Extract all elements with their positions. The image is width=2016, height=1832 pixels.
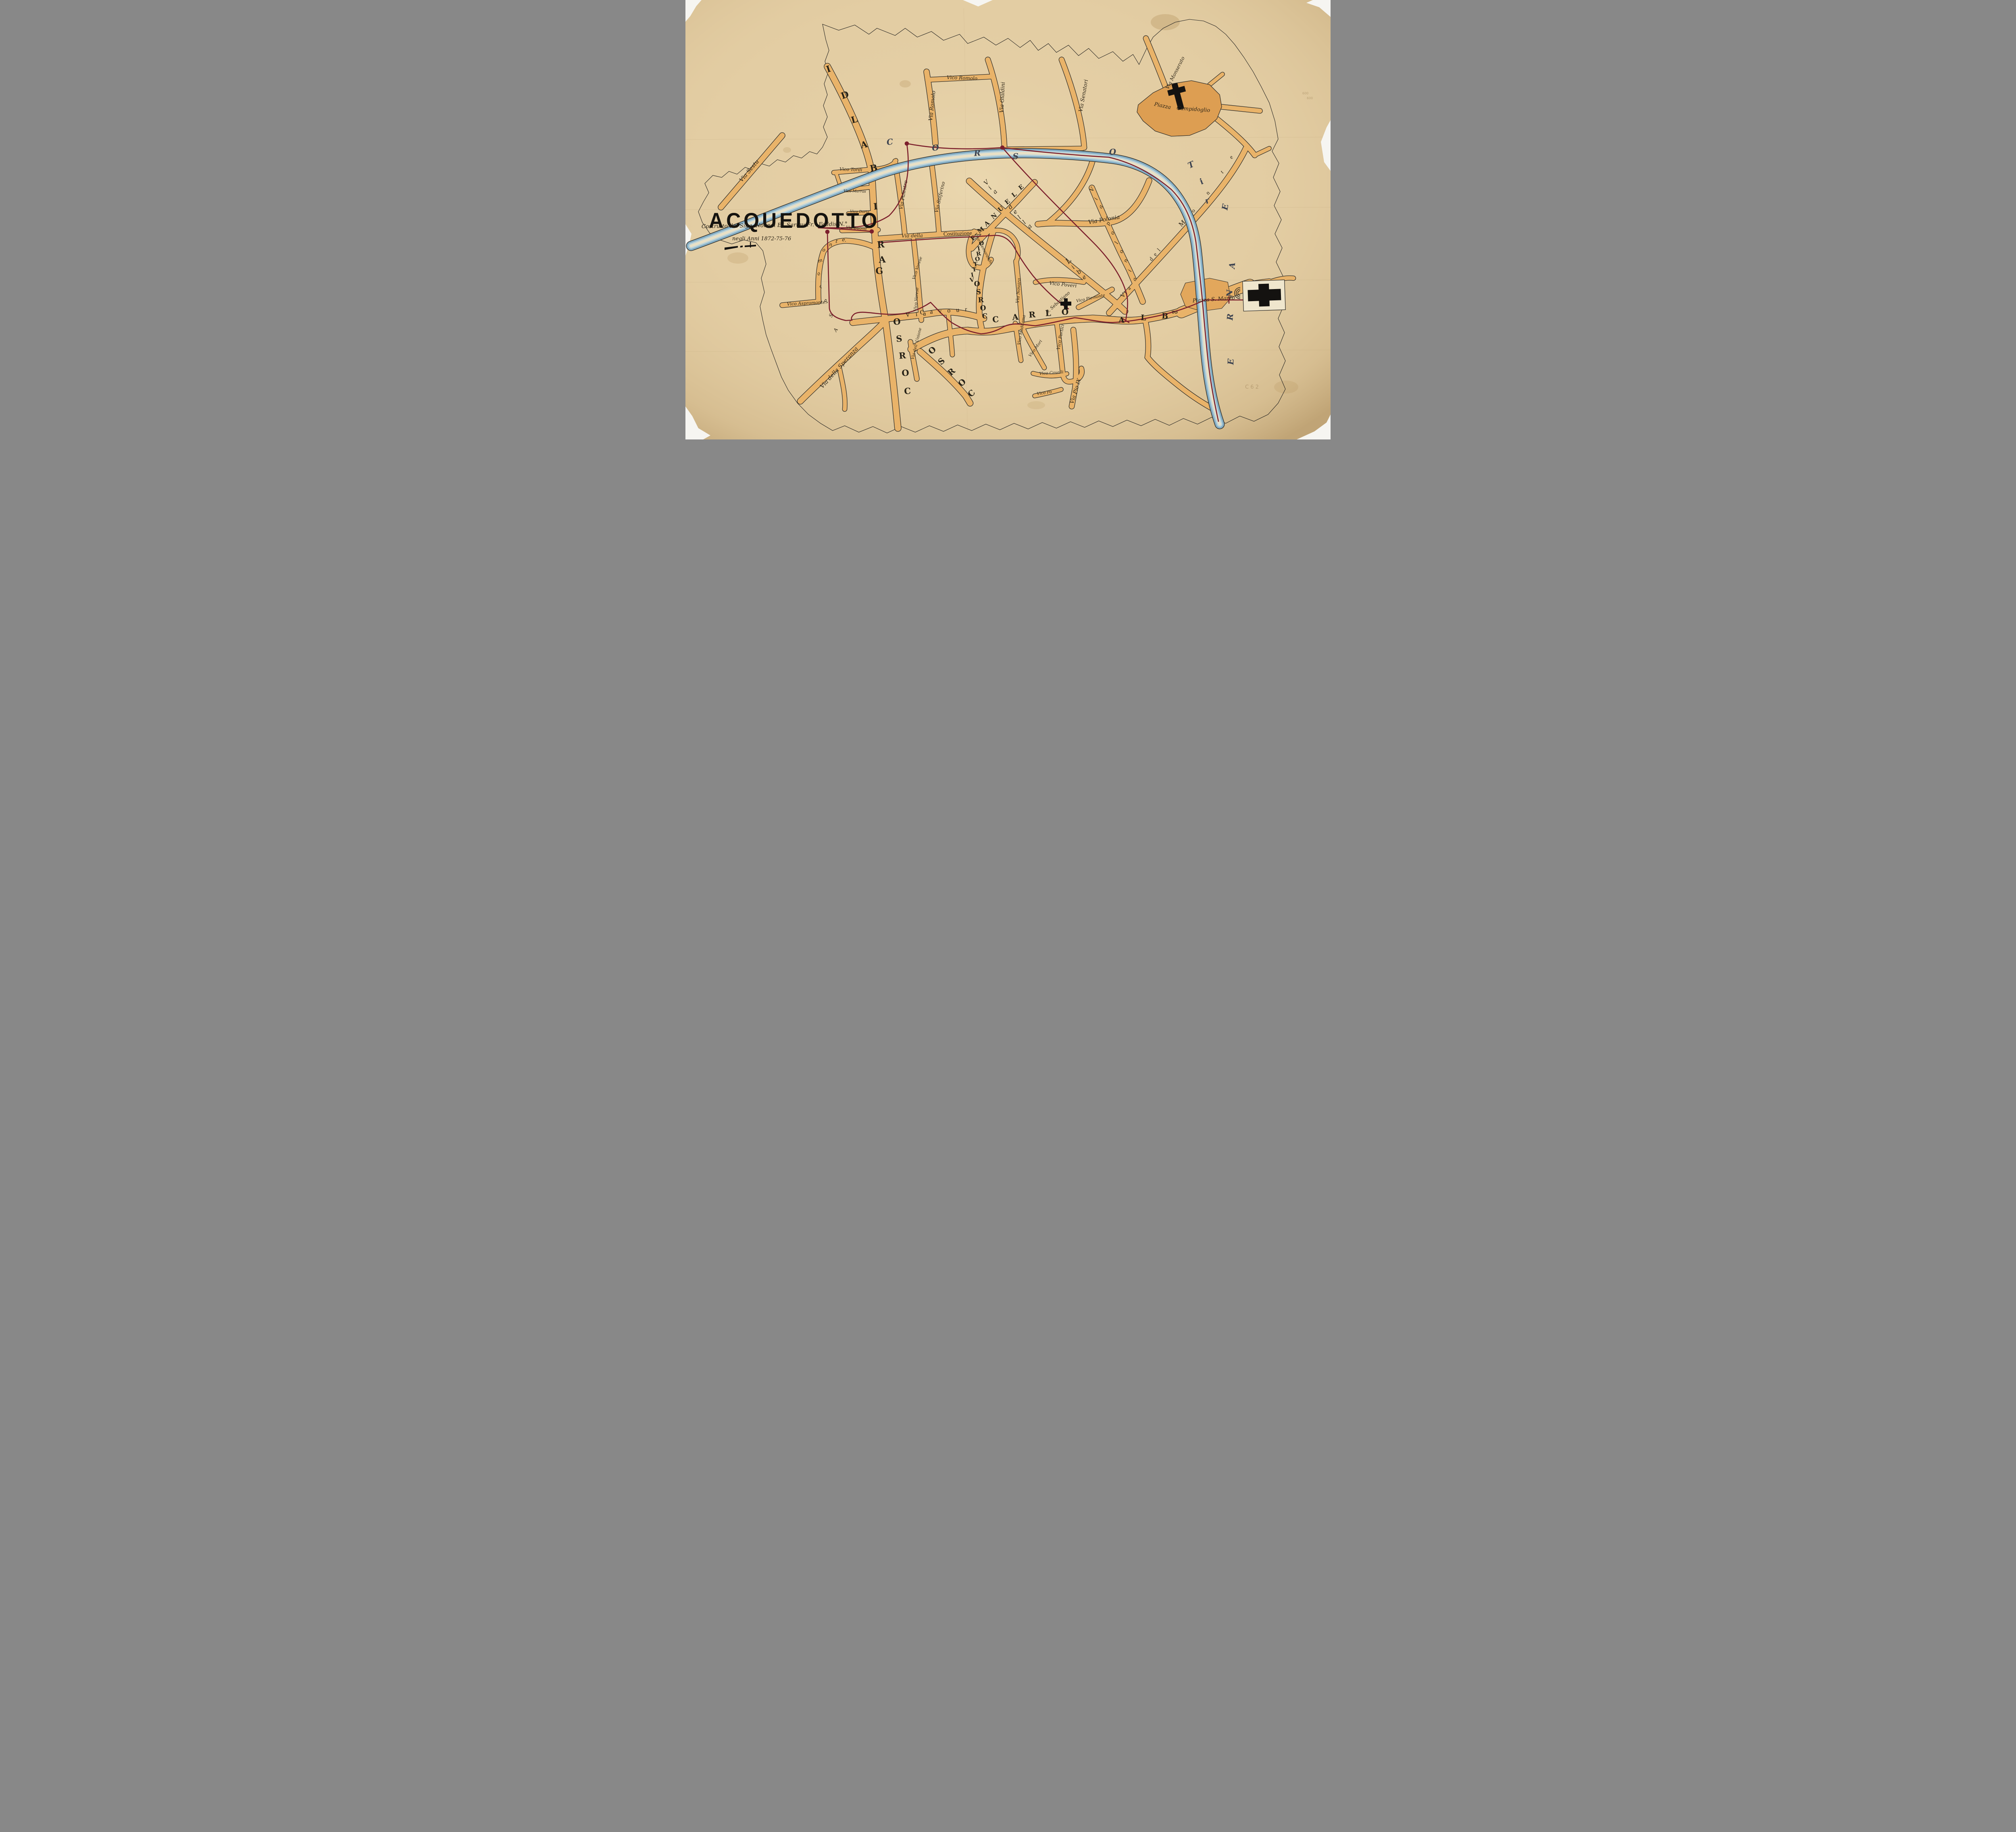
carlo-letter: O (1061, 307, 1068, 317)
aspromonte-spread-letter: n (829, 241, 833, 248)
carlo-letter: A (1011, 312, 1019, 322)
street-label: Via della (902, 233, 923, 239)
corso-garibaldi-lower-letter: C (904, 386, 911, 396)
corso-vittorio-emanuele-corso-letter: C (982, 312, 988, 321)
alberto-abbrev-letter: B (1162, 312, 1168, 321)
corso-garibaldi-lower-letter: R (898, 350, 906, 361)
street-label: Vico Doria (850, 210, 869, 214)
faint-paper-mark: 600 (1307, 96, 1313, 100)
corso-vittorio-emanuele-corso-letter: R (978, 296, 984, 304)
aqueduct-node-dot (1001, 146, 1004, 149)
faint-paper-mark: 600 (1302, 92, 1308, 95)
corso-garibaldi-lower-letter: O (893, 316, 901, 327)
map-subtitle-2: negli Anni 1872-75-76 (732, 236, 791, 242)
alberto-abbrev-letter: L (1141, 313, 1146, 322)
corso-garibaldi-lower-letter: O (901, 367, 909, 378)
river-corso-letter: O (931, 143, 939, 153)
river-corso-letter: A (1227, 262, 1237, 270)
river-corso-letter: R (973, 148, 981, 158)
corso-garibaldi-lower-letter: S (896, 333, 902, 344)
map-canvas: ACQUEDOTTO Costrutto dai Sigg. Nonnoi Ef… (685, 0, 1331, 439)
river-corso-letter: E (1226, 358, 1236, 365)
aspromonte-spread-letter: e. (842, 237, 847, 243)
corso-vittorio-emanuele-corso-letter: O (974, 280, 980, 288)
corso-garibaldi-upper-letter: A (878, 254, 887, 265)
carlo-letter: C (992, 314, 999, 325)
alberto-abbrev-letter: TO (1172, 311, 1178, 315)
street-label: Costituzione (943, 231, 972, 237)
street-label: Vico Romolo (947, 75, 977, 81)
carlo-letter: R (1029, 310, 1036, 320)
aspromonte-spread-letter: o (822, 247, 825, 253)
map-sheet: ACQUEDOTTO Costrutto dai Sigg. Nonnoi Ef… (685, 0, 1331, 439)
corso-vittorio-emanuele-corso-letter: O (980, 304, 986, 312)
alberto-abbrev-letter: A (1118, 316, 1125, 325)
corso-vittorio-emanuele-corso-letter: S (976, 288, 981, 296)
aqueduct-node-dot (905, 142, 908, 145)
street-label: Vico Marras (843, 189, 866, 194)
river-corso-letter: O (1109, 147, 1116, 157)
river-corso-letter: N (1225, 289, 1235, 298)
river-corso-letter: C (886, 137, 893, 147)
corso-garibaldi-upper-letter: R (877, 239, 885, 250)
corso-garibaldi-upper-letter: G (875, 266, 884, 277)
river-corso-letter: S (1012, 151, 1019, 161)
river-corso-letter: R (1225, 313, 1235, 321)
street-label: Vico Tordi (839, 167, 862, 173)
san-marco-church-icon (1243, 280, 1286, 311)
carlo-letter: L (1045, 308, 1051, 318)
faint-paper-mark: C 6 2 (1245, 384, 1259, 390)
